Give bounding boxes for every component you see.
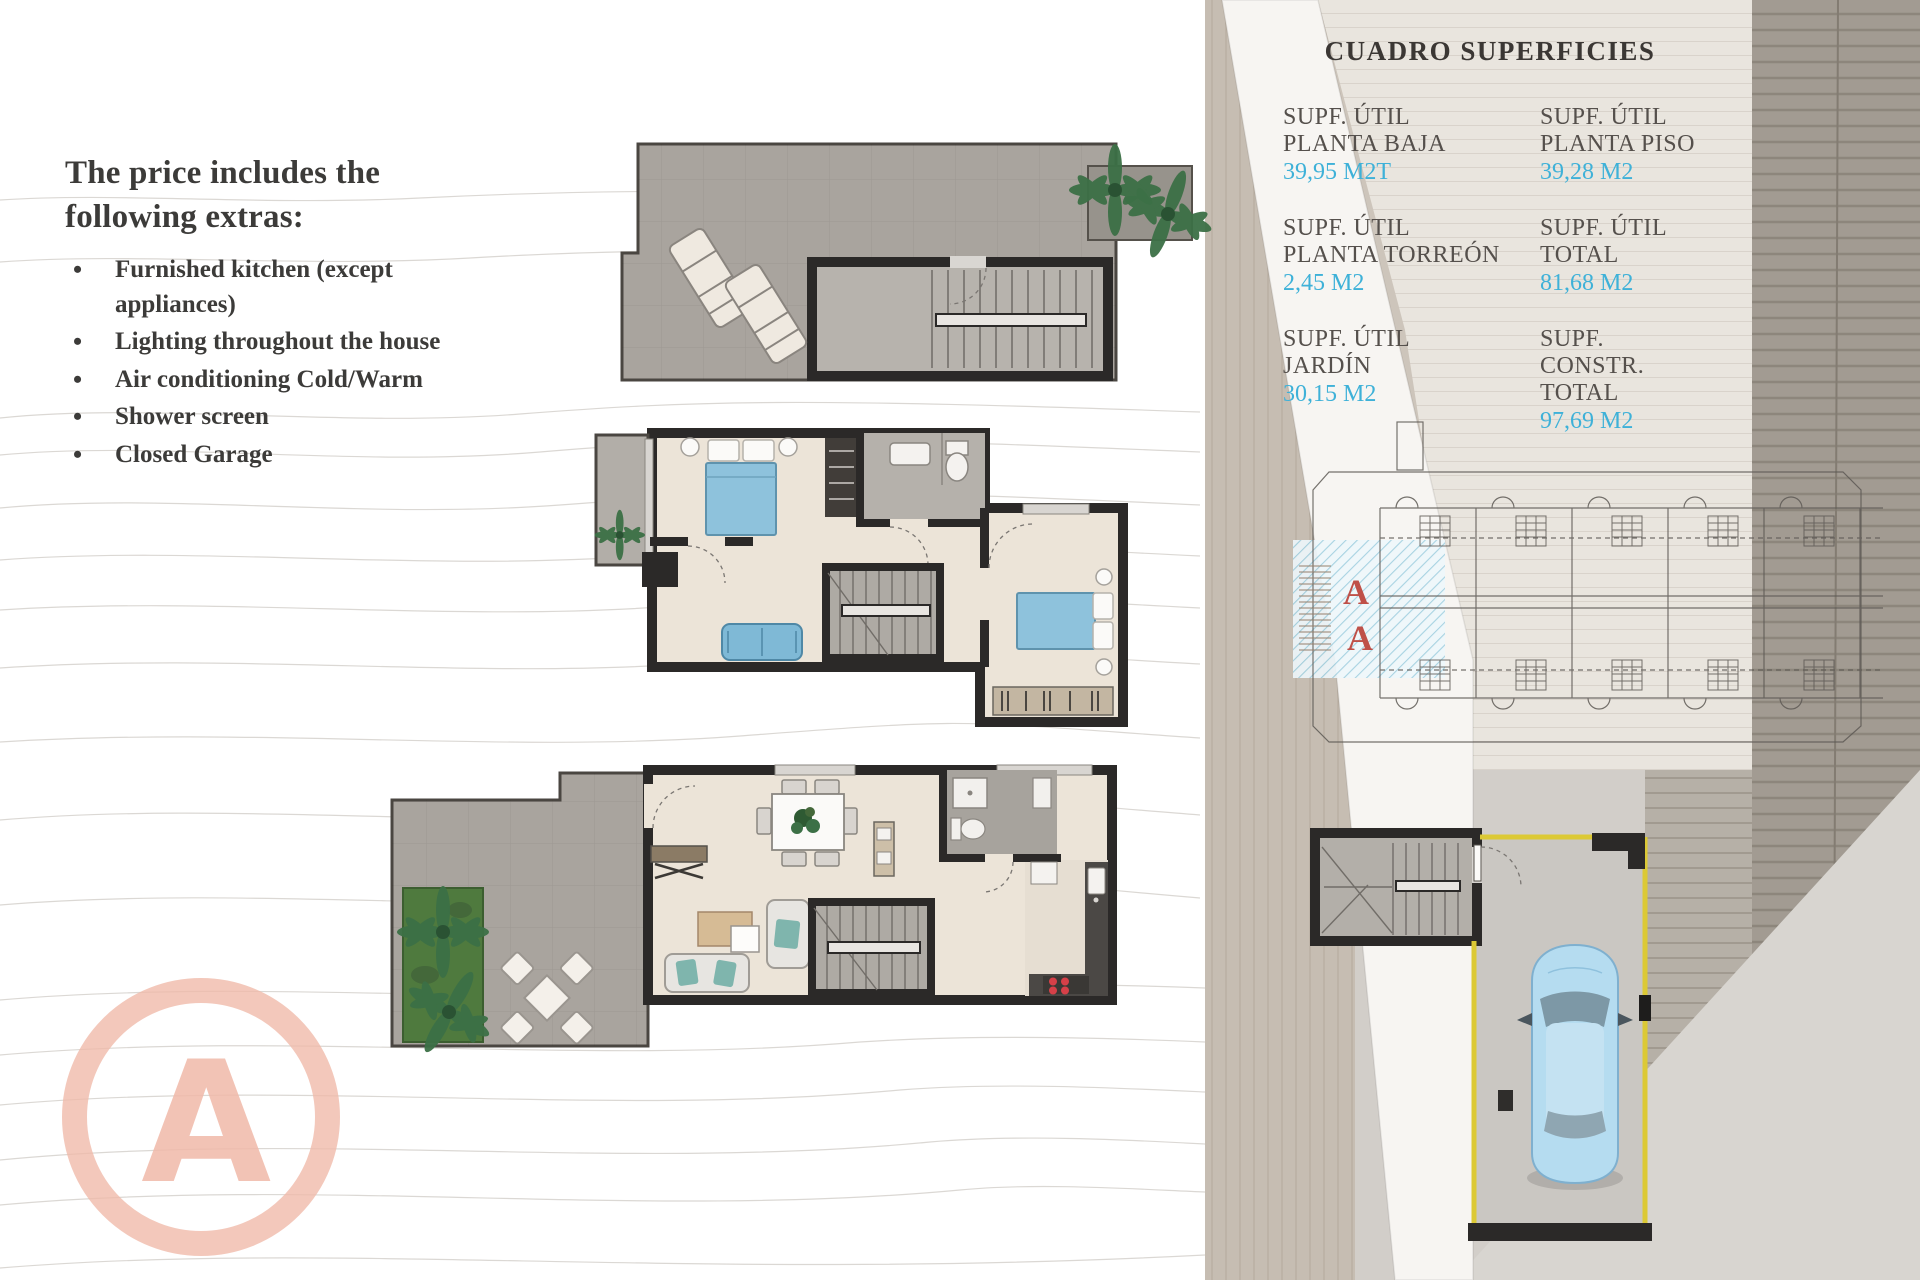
unit-label: A <box>1343 572 1369 612</box>
wardrobe <box>993 687 1113 715</box>
stair-room <box>1315 833 1477 941</box>
superficies-table: SUPF. ÚTIL PLANTA BAJA 39,95 M2T SUPF. Ú… <box>1283 104 1713 435</box>
superficies-cell: SUPF. ÚTIL PLANTA PISO 39,28 M2 <box>1540 104 1713 186</box>
list-item: •Furnished kitchen (except appliances) <box>65 253 495 322</box>
wardrobe <box>825 438 858 517</box>
area-value: 39,95 M2T <box>1283 159 1540 186</box>
list-item: •Shower screen <box>65 400 495 435</box>
list-item: •Air conditioning Cold/Warm <box>65 363 495 398</box>
extras-block: The price includes the following extras:… <box>65 152 535 475</box>
sofa <box>722 624 802 660</box>
bullet-icon: • <box>73 437 82 473</box>
area-value: 2,45 M2 <box>1283 270 1540 297</box>
superficies-cell: SUPF. ÚTIL PLANTA TORREÓN 2,45 M2 <box>1283 215 1540 297</box>
logo-letter: A <box>141 1039 271 1207</box>
sink <box>890 443 930 465</box>
brochure-page: The price includes the following extras:… <box>0 0 1920 1280</box>
garage-plan <box>1308 823 1668 1263</box>
toilet <box>946 441 968 481</box>
superficies-title: CUADRO SUPERFICIES <box>1280 36 1700 67</box>
car <box>1517 945 1633 1190</box>
solarium-floor-plan <box>620 138 1220 388</box>
sink <box>1033 778 1051 808</box>
superficies-cell: SUPF. ÚTIL PLANTA BAJA 39,95 M2T <box>1283 104 1540 186</box>
first-floor-plan <box>590 425 1135 735</box>
brand-logo: A <box>62 978 340 1256</box>
bullet-icon: • <box>73 399 82 435</box>
list-item: •Closed Garage <box>65 438 495 473</box>
area-value: 81,68 M2 <box>1540 270 1713 297</box>
sofa <box>665 954 749 992</box>
bullet-icon: • <box>73 362 82 398</box>
stairs <box>826 567 940 658</box>
extras-heading: The price includes the following extras: <box>65 152 535 239</box>
bullet-icon: • <box>73 324 82 360</box>
extras-list: •Furnished kitchen (except appliances) •… <box>65 253 495 472</box>
armchair <box>767 900 809 968</box>
unit-label: A <box>1347 618 1373 658</box>
area-value: 30,15 M2 <box>1283 381 1540 408</box>
area-value: 39,28 M2 <box>1540 159 1713 186</box>
superficies-cell: SUPF. ÚTIL TOTAL 81,68 M2 <box>1540 215 1713 297</box>
unit-porches <box>1396 497 1802 709</box>
site-plan: A A <box>1285 408 1885 770</box>
bullet-icon: • <box>73 252 82 288</box>
ground-floor-plan <box>385 760 1130 1060</box>
stairs <box>812 902 931 993</box>
list-item: •Lighting throughout the house <box>65 325 495 360</box>
toilet <box>951 818 985 840</box>
